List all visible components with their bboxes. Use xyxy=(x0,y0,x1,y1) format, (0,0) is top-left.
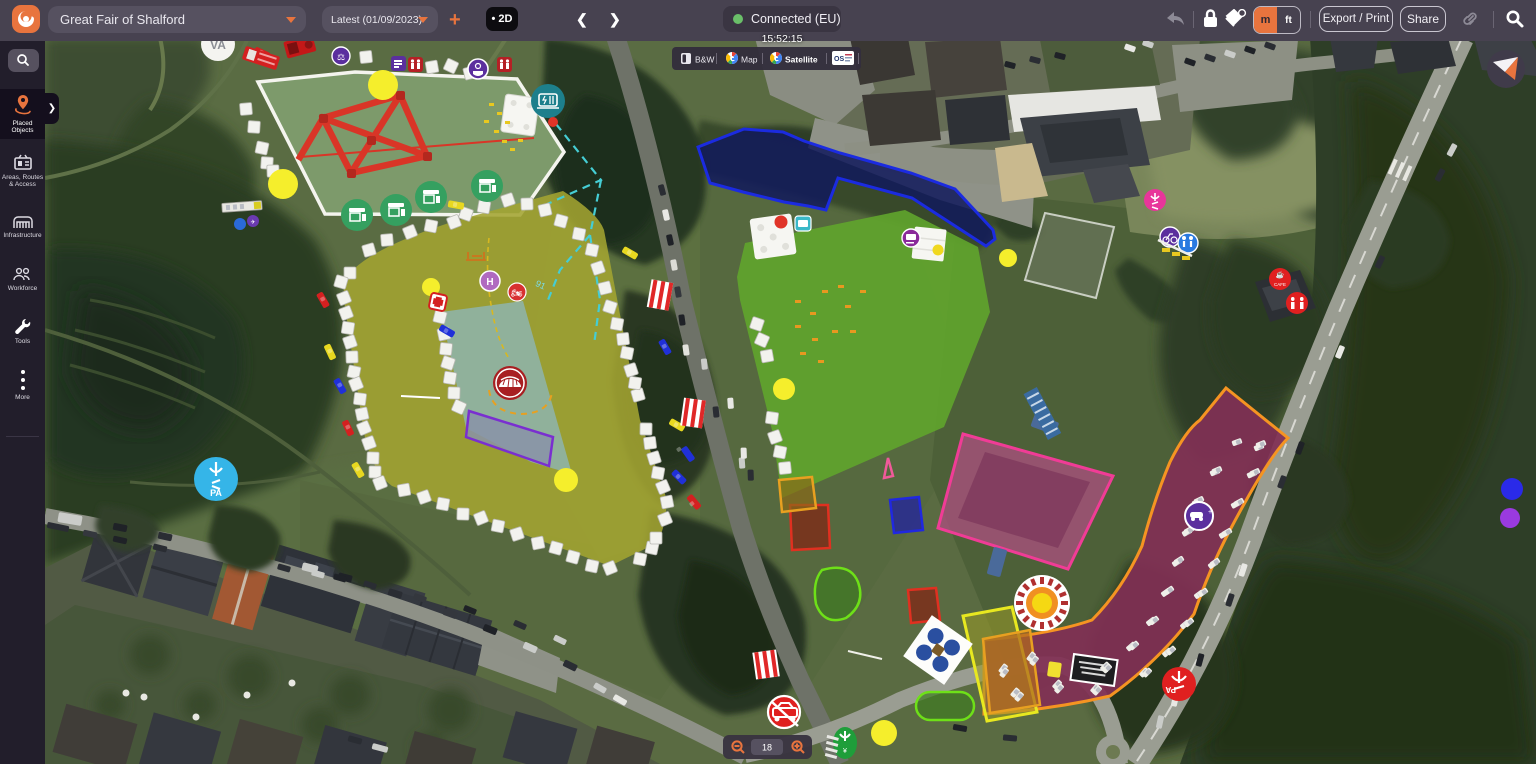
svg-text:⚖: ⚖ xyxy=(337,52,345,62)
svg-text:OS: OS xyxy=(834,56,844,63)
svg-text:✈: ✈ xyxy=(250,219,255,226)
svg-text:H: H xyxy=(486,277,493,288)
svg-text:🏍: 🏍 xyxy=(511,288,523,298)
svg-text:Map: Map xyxy=(741,55,758,65)
svg-text:☕: ☕ xyxy=(1276,270,1285,279)
svg-text:¥: ¥ xyxy=(843,748,847,755)
svg-text:18: 18 xyxy=(762,743,772,753)
svg-text:PA: PA xyxy=(1165,685,1176,694)
svg-text:PA: PA xyxy=(210,488,222,498)
svg-text:Satellite: Satellite xyxy=(785,55,818,65)
svg-text:CAFE: CAFE xyxy=(1274,282,1286,287)
svg-text:B&W: B&W xyxy=(695,55,714,65)
svg-text:+: + xyxy=(1208,509,1212,516)
